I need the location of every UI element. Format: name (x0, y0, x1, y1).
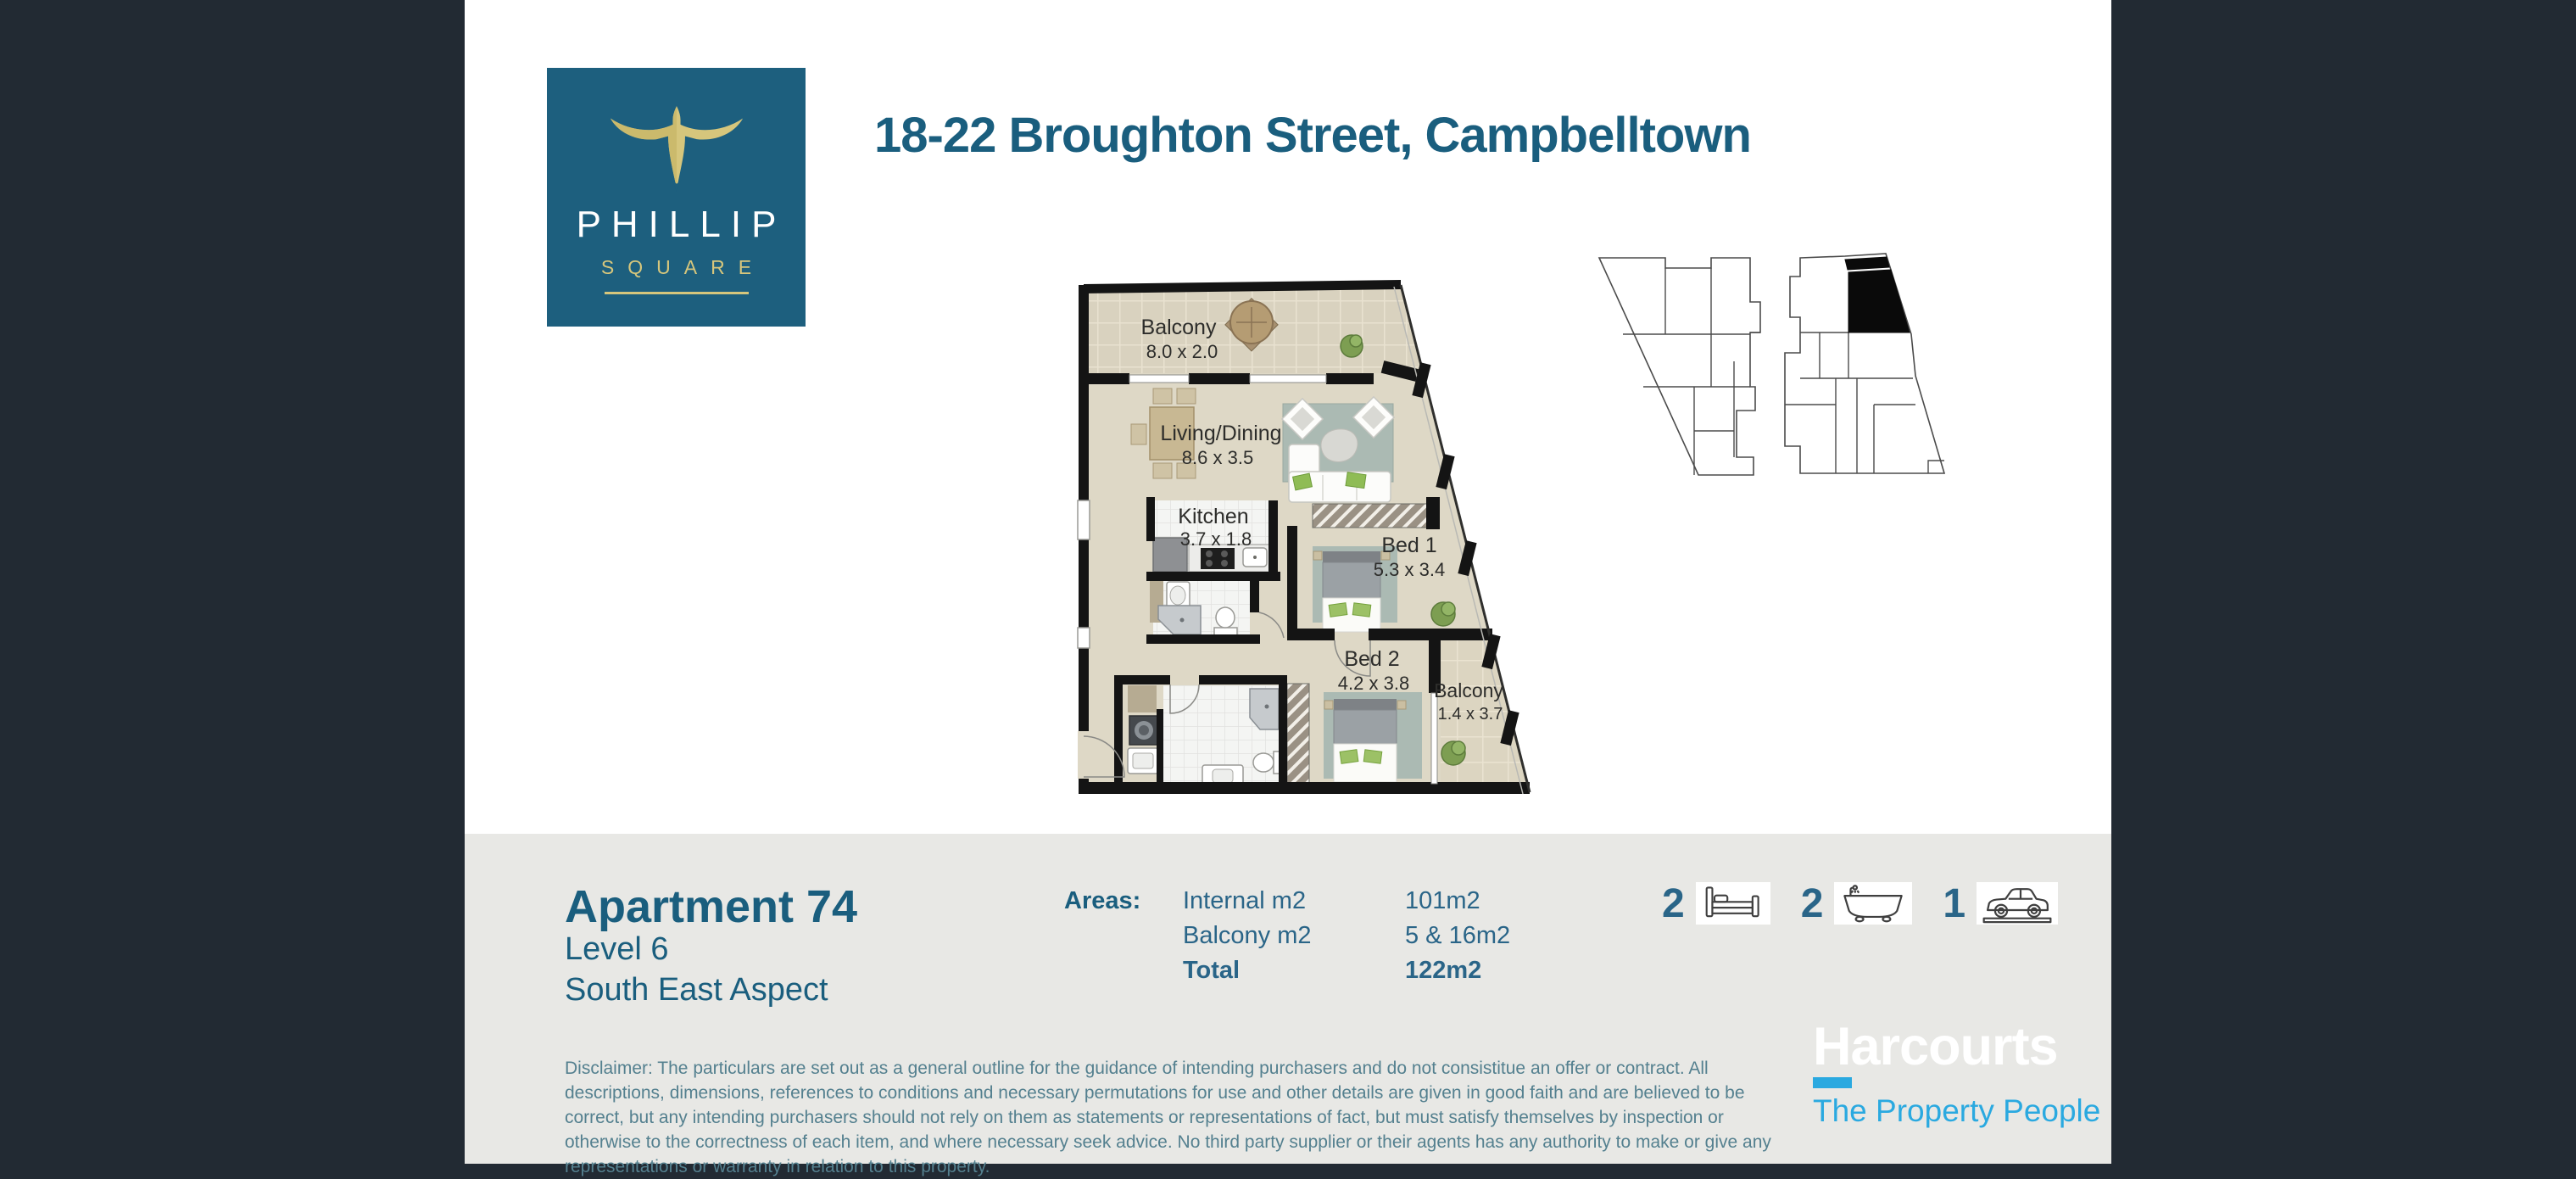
bed-count: 2 (1662, 880, 1685, 927)
page-background: { "colors": { "background_dark": "#222A3… (0, 0, 2576, 1164)
area-row-label: Total (1183, 957, 1405, 985)
bed2-wardrobe (1287, 684, 1309, 784)
phillip-square-logo: PHILLIP SQUARE (547, 68, 806, 327)
apartment-aspect: South East Aspect (565, 972, 828, 1009)
room-label: Balcony (1141, 316, 1217, 339)
bath-count: 2 (1801, 880, 1824, 927)
disclaimer-text: Disclaimer: The particulars are set out … (565, 1056, 1782, 1179)
car-count: 1 (1943, 880, 1965, 927)
agency-tagline: The Property People (1813, 1093, 2100, 1129)
building-keyplan (1592, 251, 1961, 489)
room-label: Kitchen (1178, 505, 1248, 528)
bed-icon (1696, 882, 1770, 925)
bird-icon (588, 98, 766, 198)
harcourts-logo: Harcourts The Property People (1813, 1020, 2100, 1129)
room-dims: 8.6 x 3.5 (1182, 447, 1253, 468)
agency-name: Harcourts (1813, 1020, 2100, 1074)
area-row-value: 101m2 (1405, 887, 1510, 915)
car-icon (1977, 882, 2058, 925)
room-label: Living/Dining (1160, 422, 1281, 445)
area-row-value: 122m2 (1405, 957, 1510, 985)
floorplan-drawing: Balcony 8.0 x 2.0 Living/Dining 8.6 x 3.… (1075, 278, 1537, 801)
room-dims: 8.0 x 2.0 (1146, 341, 1218, 362)
bed2-furniture (1324, 692, 1422, 782)
apartment-number: Apartment 74 (565, 880, 857, 933)
apartment-level: Level 6 (565, 931, 669, 968)
bed1-wardrobe (1313, 504, 1428, 528)
areas-table: Internal m2 101m2 Balcony m2 5 & 16m2 To… (1183, 887, 1510, 985)
area-row-label: Balcony m2 (1183, 922, 1405, 950)
page-title: 18-22 Broughton Street, Campbelltown (874, 107, 1751, 164)
area-row-label: Internal m2 (1183, 887, 1405, 915)
room-label: Bed 1 (1381, 534, 1436, 557)
areas-heading: Areas: (1064, 887, 1140, 915)
logo-wordmark: PHILLIP (577, 204, 787, 246)
logo-subtitle: SQUARE (601, 256, 765, 279)
area-row-value: 5 & 16m2 (1405, 922, 1510, 950)
flyer-page: PHILLIP SQUARE 18-22 Broughton Street, C… (465, 0, 2111, 1164)
room-label: Balcony (1434, 679, 1503, 701)
logo-divider (605, 292, 749, 294)
agency-underline (1813, 1077, 1852, 1088)
feature-summary: 2 2 1 (1662, 879, 2058, 928)
room-dims: 5.3 x 3.4 (1374, 559, 1445, 580)
highlighted-unit (1845, 257, 1910, 332)
room-dims: 1.4 x 3.7 (1438, 705, 1503, 724)
bath-icon (1834, 882, 1912, 925)
room-dims: 3.7 x 1.8 (1180, 528, 1252, 550)
room-label: Bed 2 (1344, 647, 1399, 671)
room-dims: 4.2 x 3.8 (1338, 673, 1409, 694)
